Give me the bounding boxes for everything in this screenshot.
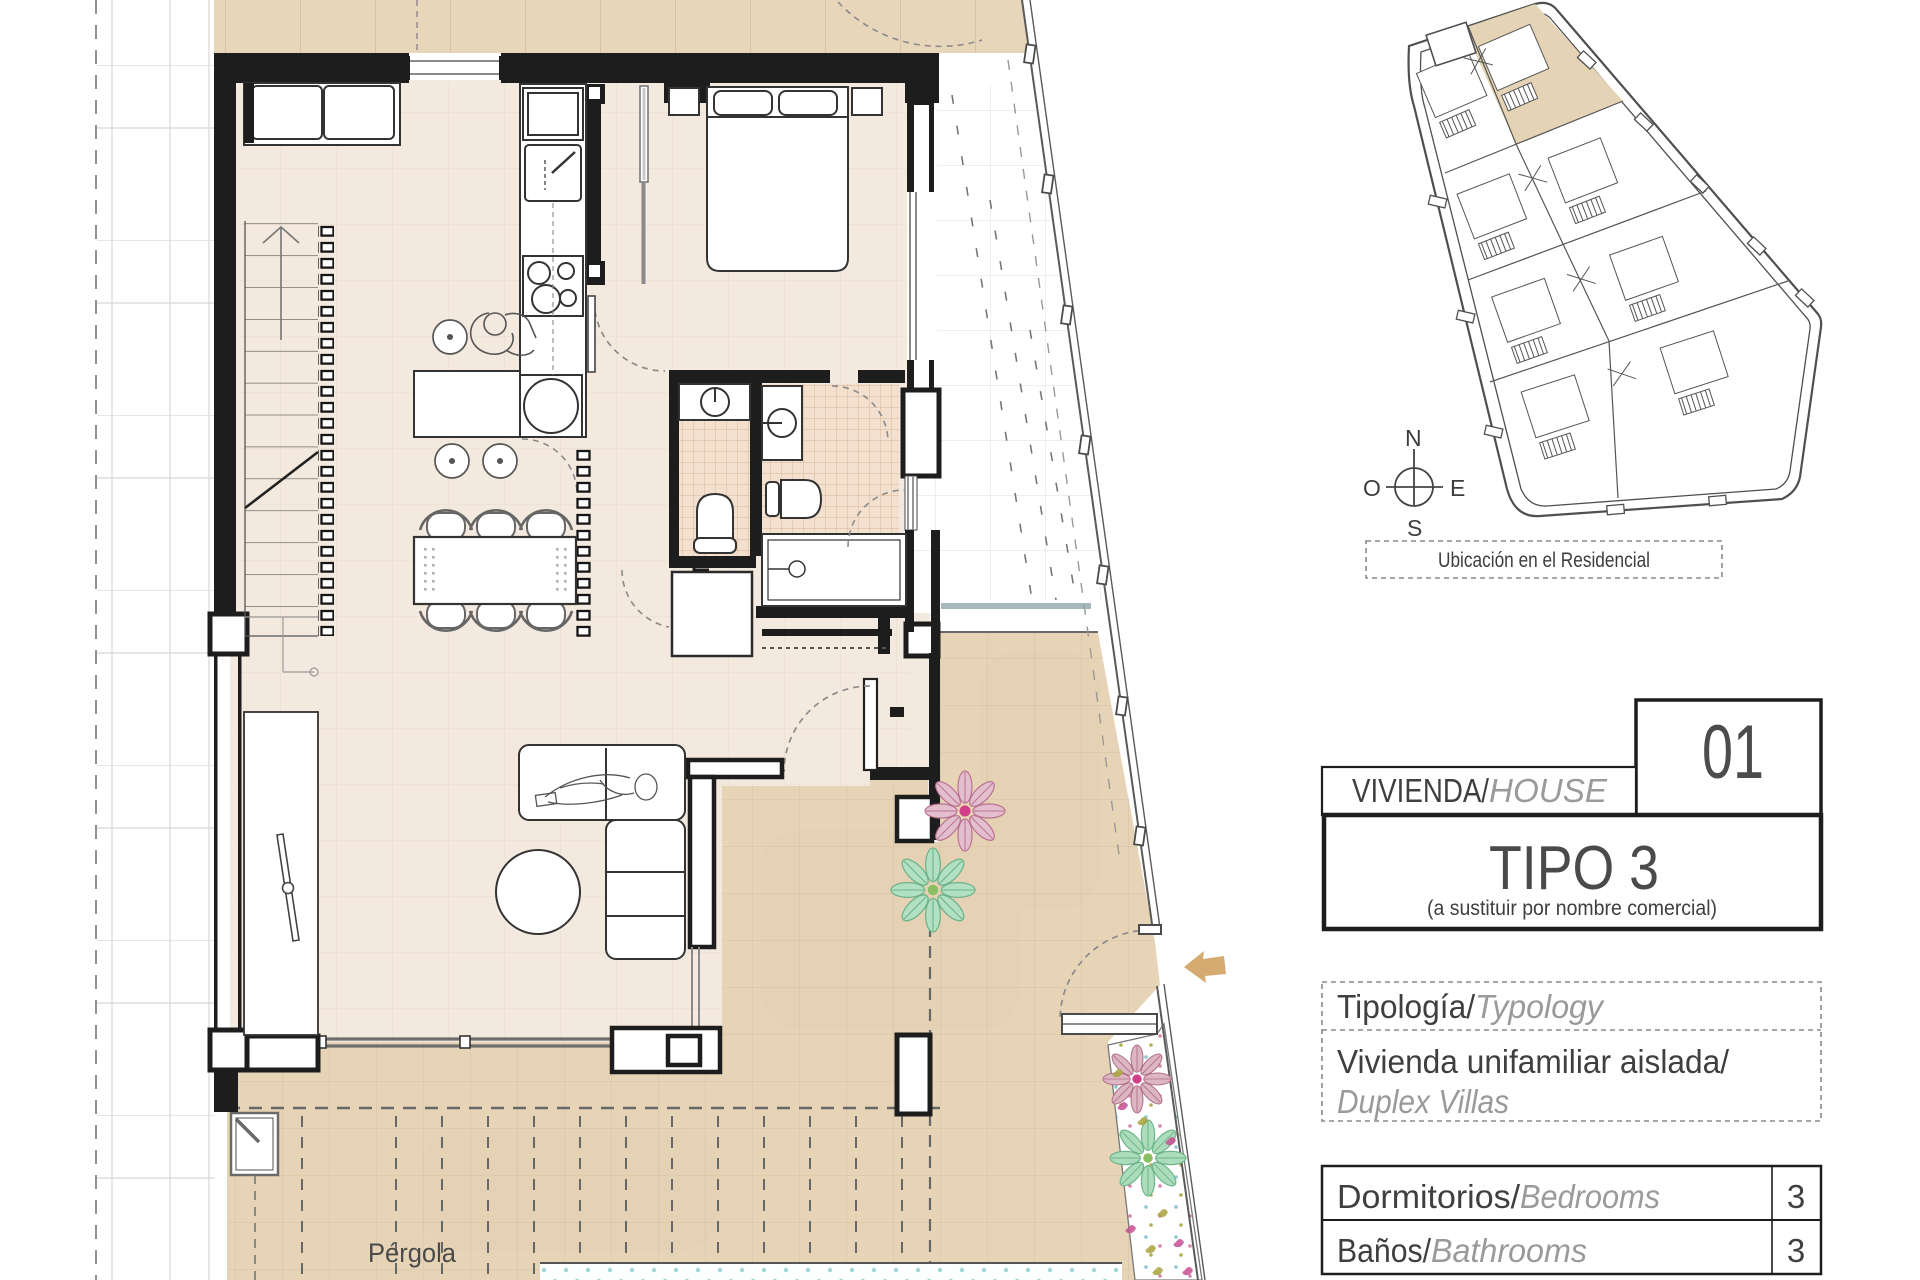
svg-text:3: 3 [1787, 1232, 1805, 1269]
svg-text:Baños/Bathrooms: Baños/Bathrooms [1337, 1232, 1587, 1269]
svg-text:Vivienda unifamiliar aislada/: Vivienda unifamiliar aislada/ [1337, 1043, 1730, 1080]
svg-text:TIPO 3: TIPO 3 [1489, 834, 1659, 903]
svg-text:E: E [1450, 475, 1465, 501]
svg-text:Tipología/Typology: Tipología/Typology [1337, 988, 1605, 1025]
svg-text:O: O [1363, 475, 1381, 501]
svg-text:S: S [1407, 515, 1422, 541]
svg-text:01: 01 [1702, 710, 1764, 795]
svg-text:VIVIENDA/HOUSE: VIVIENDA/HOUSE [1352, 772, 1608, 809]
svg-text:Ubicación en el Residencial: Ubicación en el Residencial [1438, 549, 1650, 572]
svg-text:Pérgola: Pérgola [368, 1238, 457, 1268]
svg-text:Duplex Villas: Duplex Villas [1337, 1083, 1509, 1120]
svg-text:3: 3 [1787, 1178, 1805, 1215]
svg-text:(a sustituir por nombre comerc: (a sustituir por nombre comercial) [1427, 897, 1717, 920]
svg-text:Dormitorios/Bedrooms: Dormitorios/Bedrooms [1337, 1178, 1660, 1215]
svg-text:N: N [1405, 425, 1422, 451]
